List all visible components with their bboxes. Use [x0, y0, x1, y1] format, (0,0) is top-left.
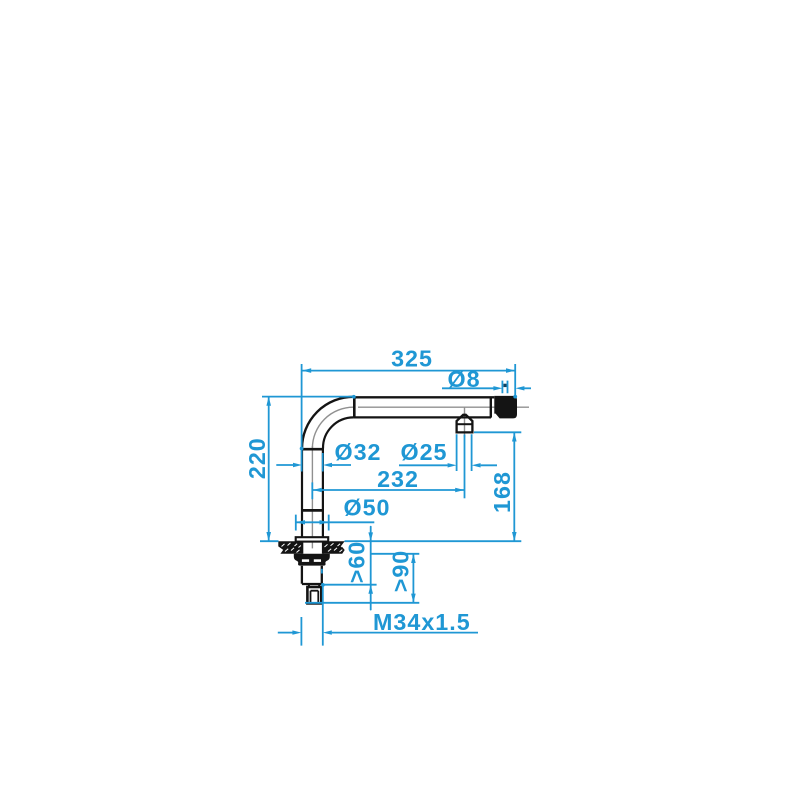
- svg-text:>60: >60: [344, 541, 370, 584]
- svg-text:168: 168: [489, 471, 515, 513]
- svg-text:Ø32: Ø32: [334, 439, 381, 465]
- svg-text:232: 232: [377, 466, 419, 492]
- svg-text:220: 220: [244, 437, 270, 479]
- svg-text:M34x1.5: M34x1.5: [373, 609, 471, 635]
- svg-text:Ø25: Ø25: [400, 439, 447, 465]
- svg-text:Ø8: Ø8: [447, 366, 480, 392]
- svg-text:Ø50: Ø50: [343, 494, 390, 520]
- svg-text:>90: >90: [387, 550, 413, 593]
- svg-text:325: 325: [391, 346, 433, 372]
